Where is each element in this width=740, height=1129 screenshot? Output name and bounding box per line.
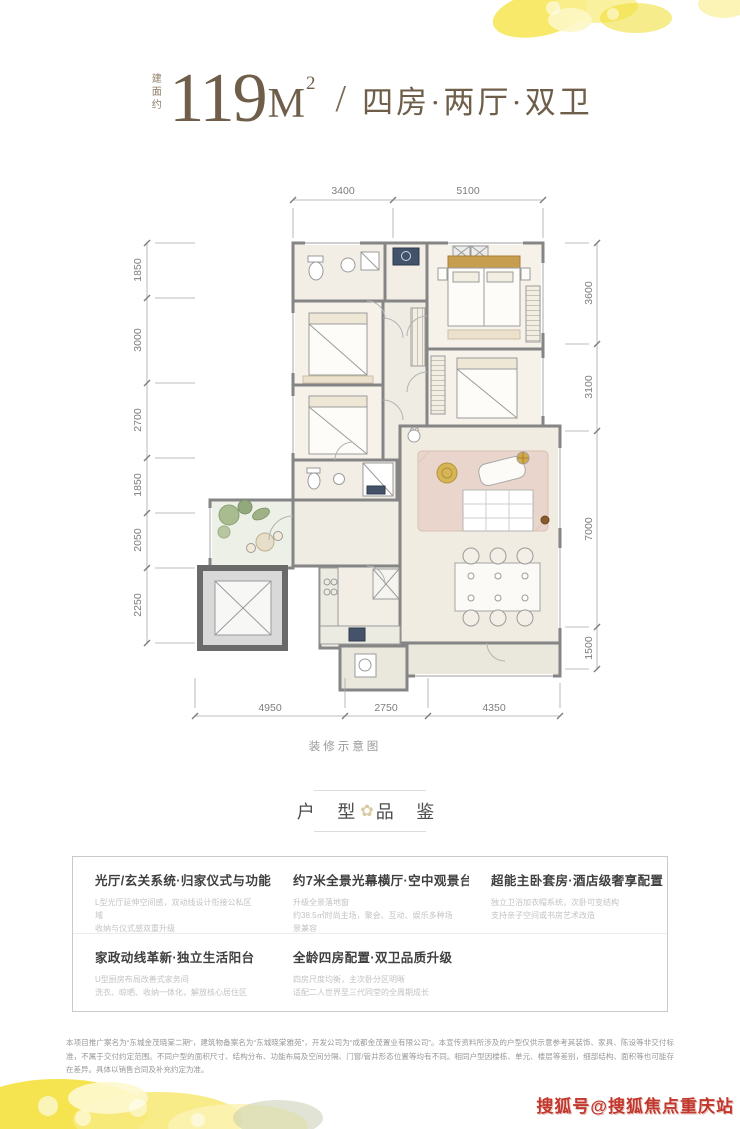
dim-left-5: 2050 — [132, 528, 144, 552]
decor-flower-bottom-left — [0, 1058, 338, 1129]
feature-title: 光厅/玄关系统·归家仪式与功能并存 — [95, 870, 257, 889]
feature-cell-4: 家政动线革新·独立生活阳台 U型厨房布局改善式家务间洗衣、晾晒、收纳一体化，解放… — [73, 934, 271, 1011]
section-line-top — [314, 790, 426, 791]
features-box: 光厅/玄关系统·归家仪式与功能并存 L型光厅延伸空间感，双动线设计衔接公私区域收… — [72, 856, 668, 1012]
section-title: 户 型 ✿ 品 鉴 — [297, 798, 443, 824]
plan-elevator — [200, 568, 285, 648]
page-title: 建面约 119 M2 / 四房·两厅·双卫 — [0, 64, 740, 134]
dim-right-1: 3600 — [583, 281, 595, 305]
title-divider: / — [336, 77, 347, 121]
plan-caption: 装修示意图 — [90, 738, 600, 754]
dim-bottom-2: 2750 — [374, 702, 398, 714]
flower-icon: ✿ — [360, 801, 373, 821]
section-line-bottom — [314, 831, 426, 832]
dim-bottom-3: 4350 — [482, 702, 506, 714]
section-title-left: 户 型 — [297, 798, 365, 824]
layout-text: 四房·两厅·双卫 — [362, 77, 593, 122]
dim-bottom-1: 4950 — [258, 702, 282, 714]
dim-left-4: 1850 — [132, 473, 144, 497]
floor-plan-svg: 3400 5100 1850 3000 2700 1850 2050 2250 — [115, 168, 625, 768]
dim-top-1: 3400 — [331, 185, 355, 197]
dim-left-2: 3000 — [132, 328, 144, 352]
dim-right-4: 1500 — [583, 636, 595, 660]
area-value: 119 — [169, 64, 265, 134]
watermark-text: 搜狐号@搜狐焦点重庆站 — [536, 1092, 734, 1117]
floor-plan: 3400 5100 1850 3000 2700 1850 2050 2250 — [115, 168, 625, 768]
area-superscript: 2 — [306, 73, 316, 94]
dim-right-3: 7000 — [583, 517, 595, 541]
decor-flower-top — [478, 0, 708, 48]
area-unit: M2 — [268, 74, 316, 125]
area-prefix: 建面约 — [147, 73, 162, 125]
dim-top-2: 5100 — [456, 185, 480, 197]
feature-title: 全龄四房配置·双卫品质升级 — [293, 947, 455, 966]
section-header: 户 型 ✿ 品 鉴 — [0, 790, 740, 832]
feature-cell-empty — [469, 934, 667, 1011]
dim-left-3: 2700 — [132, 408, 144, 432]
dim-right-2: 3100 — [583, 375, 595, 399]
feature-desc: L型光厅延伸空间感，双动线设计衔接公私区域收纳与仪式感双重升级 — [95, 896, 257, 934]
section-title-right: 品 鉴 — [376, 798, 444, 824]
decor-flower-top-right — [694, 0, 740, 26]
dim-left-1: 1850 — [132, 258, 144, 282]
feature-title: 超能主卧套房·酒店级奢享配置 — [491, 870, 653, 889]
feature-desc: 升级全景落地窗约38.5㎡时尚主场，聚会、互动、娱乐多种场景兼容 — [293, 896, 455, 934]
feature-cell-2: 约7米全景光幕横厅·空中观景台 升级全景落地窗约38.5㎡时尚主场，聚会、互动、… — [271, 857, 469, 934]
feature-desc: 独立卫浴加衣帽系统，次卧可变结构支持亲子空间或书房艺术改造 — [491, 896, 653, 922]
feature-title: 家政动线革新·独立生活阳台 — [95, 947, 257, 966]
feature-desc: U型厨房布局改善式家务间洗衣、晾晒、收纳一体化，解放核心居住区 — [95, 973, 257, 999]
feature-desc: 四房尺度均衡，主次卧分区明晰适配二人世界至三代同堂的全周期成长 — [293, 973, 455, 999]
feature-cell-5: 全龄四房配置·双卫品质升级 四房尺度均衡，主次卧分区明晰适配二人世界至三代同堂的… — [271, 934, 469, 1011]
feature-title: 约7米全景光幕横厅·空中观景台 — [293, 870, 455, 889]
page-root: 建面约 119 M2 / 四房·两厅·双卫 — [0, 0, 740, 1129]
feature-cell-1: 光厅/玄关系统·归家仪式与功能并存 L型光厅延伸空间感，双动线设计衔接公私区域收… — [73, 857, 271, 934]
feature-cell-3: 超能主卧套房·酒店级奢享配置 独立卫浴加衣帽系统，次卧可变结构支持亲子空间或书房… — [469, 857, 667, 934]
dim-left-6: 2250 — [132, 593, 144, 617]
